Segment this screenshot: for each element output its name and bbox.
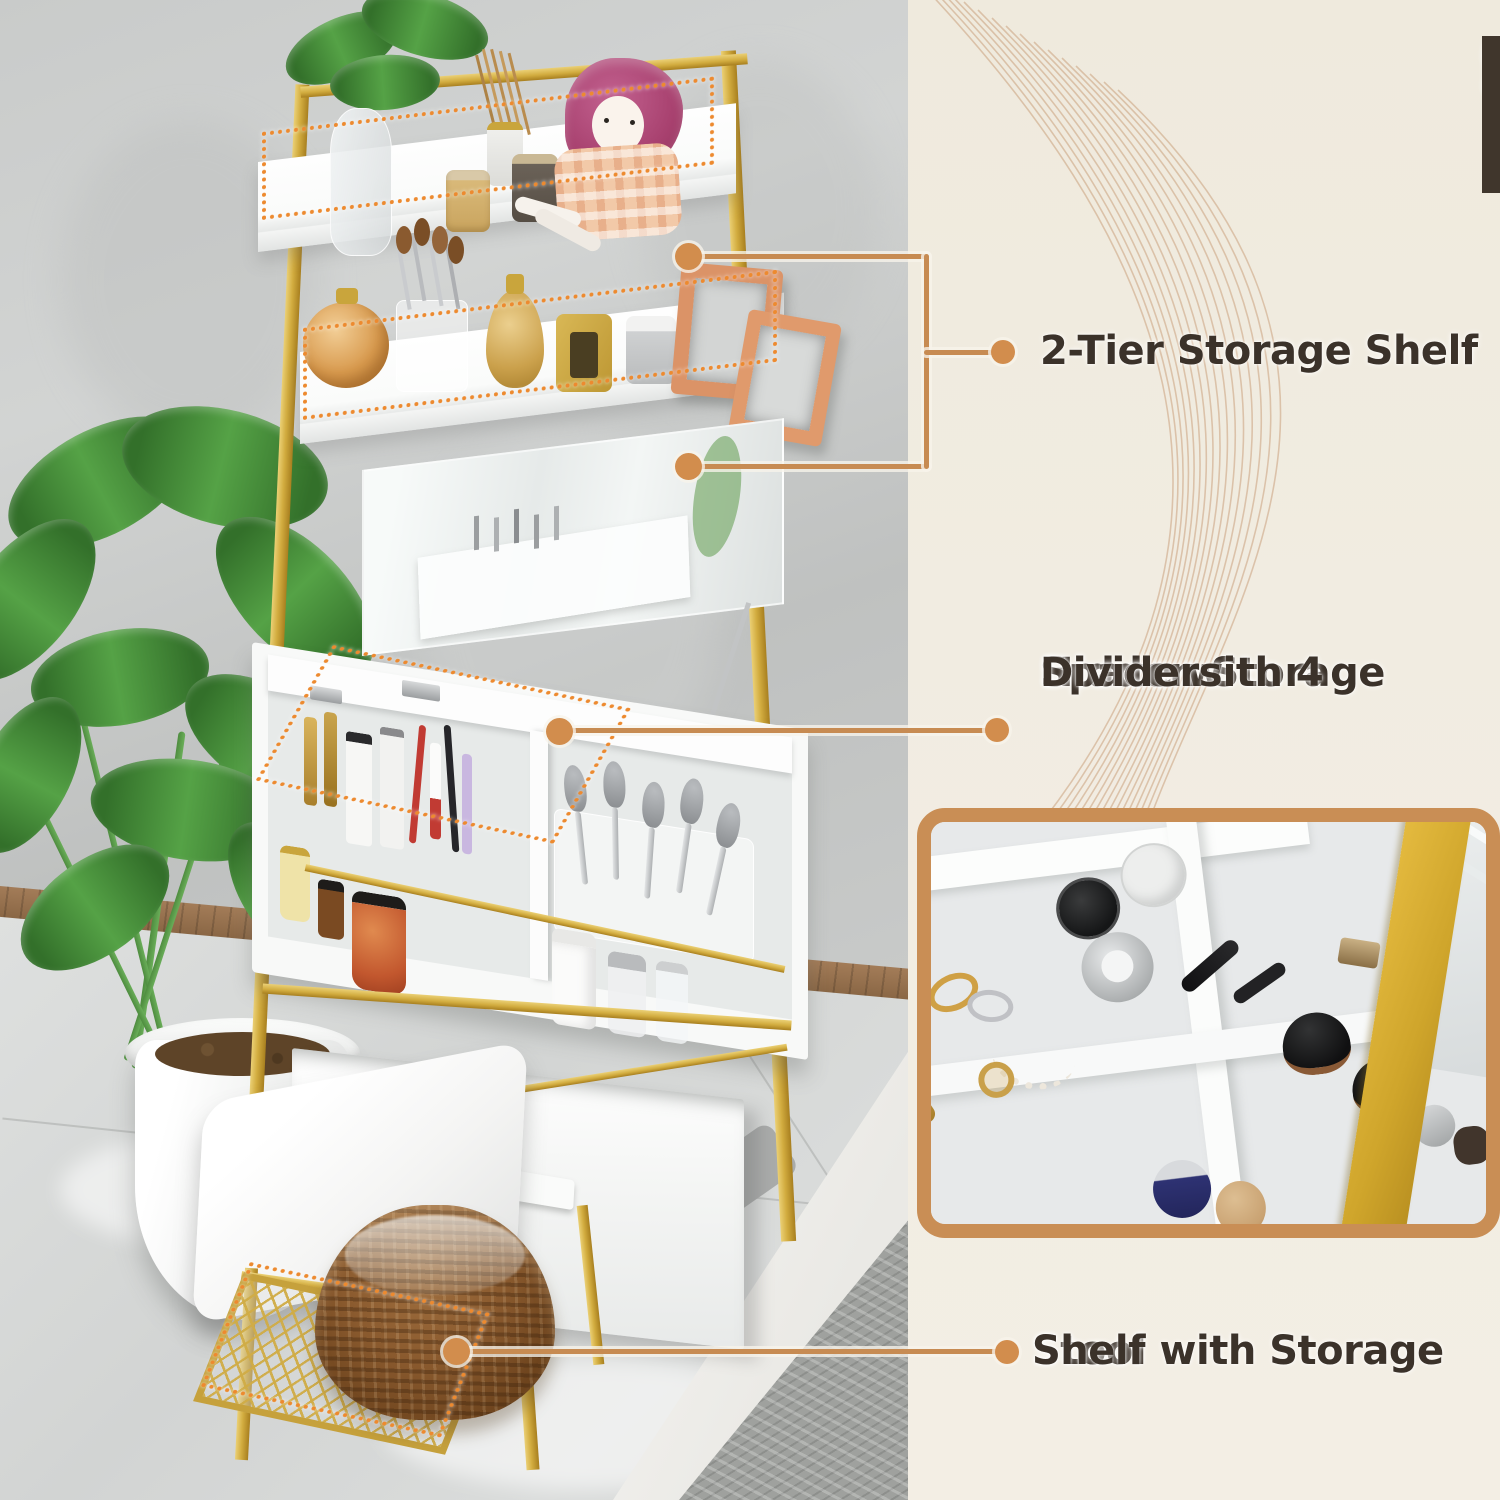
callout-dot-stool-label	[995, 1340, 1019, 1364]
basket-plastic-liner	[345, 1215, 525, 1295]
brush-tip	[396, 226, 412, 254]
callout-dot-shelf-top	[675, 243, 702, 270]
pump-bottle-silver-cap	[608, 950, 646, 1038]
headline-accent-bar	[1482, 36, 1500, 193]
oil-bottle-yellow	[280, 844, 310, 923]
callout-stool-line2: Shelf	[1032, 1328, 1145, 1375]
makeup-brush	[603, 760, 627, 881]
callout-dot-shelf-label	[991, 340, 1015, 364]
callout-dot-hidden-storage	[546, 718, 573, 745]
swirl-line-decoration	[908, 0, 1500, 1500]
mirror-reflection-item	[474, 516, 479, 551]
callout-dot-hidden-label	[985, 718, 1009, 742]
dropper-bottle-brown	[318, 878, 344, 940]
callout-dot-stool	[443, 1338, 470, 1365]
callout-line-hidden-storage	[570, 728, 998, 733]
inset-detail-photo	[917, 808, 1500, 1238]
callout-dot-shelf-bottom	[675, 453, 702, 480]
callout-line-stool	[466, 1349, 1006, 1354]
callout-line-shelf-top	[700, 254, 929, 259]
inset-jar-dark-small	[1452, 1124, 1492, 1166]
lifestyle-photo	[0, 0, 908, 1500]
callout-shelf-text: 2-Tier Storage Shelf	[1040, 328, 1478, 375]
pump-bottle-clear	[656, 960, 688, 1045]
callout-bracket-shelf	[924, 254, 929, 469]
pump-bottle-amber	[352, 890, 406, 997]
perfume-round-cap	[336, 288, 358, 304]
product-feature-infographic: Small Body, Large Capacity 2-Tier Storag…	[0, 0, 1500, 1500]
callout-hidden-line3: Dividers	[1040, 650, 1222, 697]
info-panel: Small Body, Large Capacity 2-Tier Storag…	[908, 0, 1500, 1500]
perfume-gold-neck	[506, 274, 524, 294]
callout-line-shelf-bottom	[700, 464, 929, 469]
